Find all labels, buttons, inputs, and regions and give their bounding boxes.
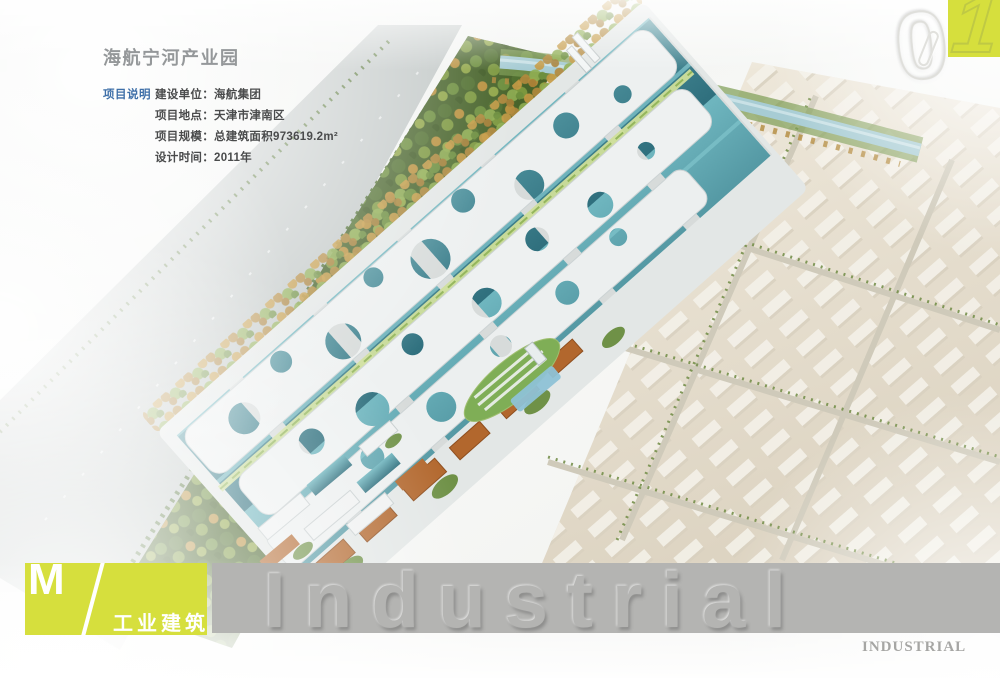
industrial-caption: INDUSTRIAL bbox=[862, 639, 966, 656]
category-label: 工业建筑 bbox=[113, 607, 207, 635]
page-number-zero: 0 bbox=[891, 1, 953, 90]
slash-decoration bbox=[81, 563, 105, 635]
corner-accent-block: 1 bbox=[948, 0, 1000, 57]
embossed-watermark: Industrial bbox=[264, 563, 805, 633]
page-title: 海航宁河产业园 bbox=[103, 44, 240, 70]
portfolio-page: { "header": { "title": "海航宁河产业园", "secti… bbox=[0, 0, 1000, 678]
page-number-one: 1 bbox=[948, 0, 1000, 57]
category-banner: M 工业建筑 bbox=[25, 563, 207, 635]
detail-build-unit: 建设单位：海航集团 bbox=[155, 85, 338, 106]
project-description-label: 项目说明 bbox=[103, 86, 151, 102]
watermark-bar: Industrial bbox=[212, 563, 1000, 633]
detail-scale: 项目规模：总建筑面积973619.2m² bbox=[155, 127, 338, 148]
category-letter: M bbox=[28, 563, 65, 602]
project-details: 建设单位：海航集团 项目地点：天津市津南区 项目规模：总建筑面积973619.2… bbox=[155, 85, 338, 169]
detail-design-year: 设计时间：2011年 bbox=[155, 148, 338, 169]
detail-location: 项目地点：天津市津南区 bbox=[155, 106, 338, 127]
